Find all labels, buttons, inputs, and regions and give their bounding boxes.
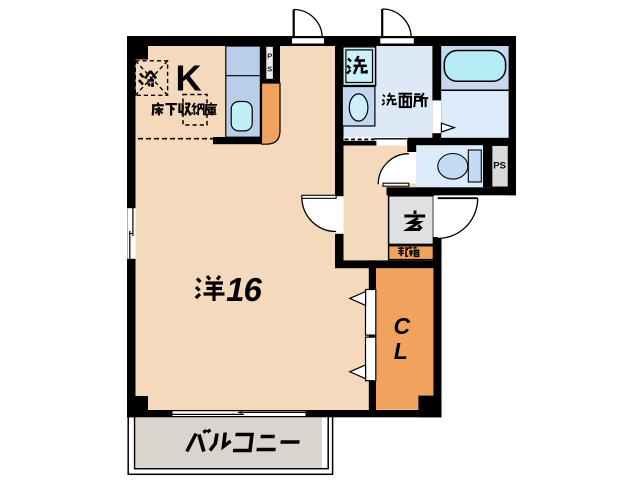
svg-text:C: C <box>393 313 410 339</box>
svg-text:16: 16 <box>226 271 262 308</box>
svg-text:S: S <box>267 65 272 74</box>
svg-text:K: K <box>176 57 202 98</box>
svg-text:PS: PS <box>493 161 506 172</box>
svg-text:L: L <box>394 338 408 364</box>
svg-text:P: P <box>267 52 272 61</box>
